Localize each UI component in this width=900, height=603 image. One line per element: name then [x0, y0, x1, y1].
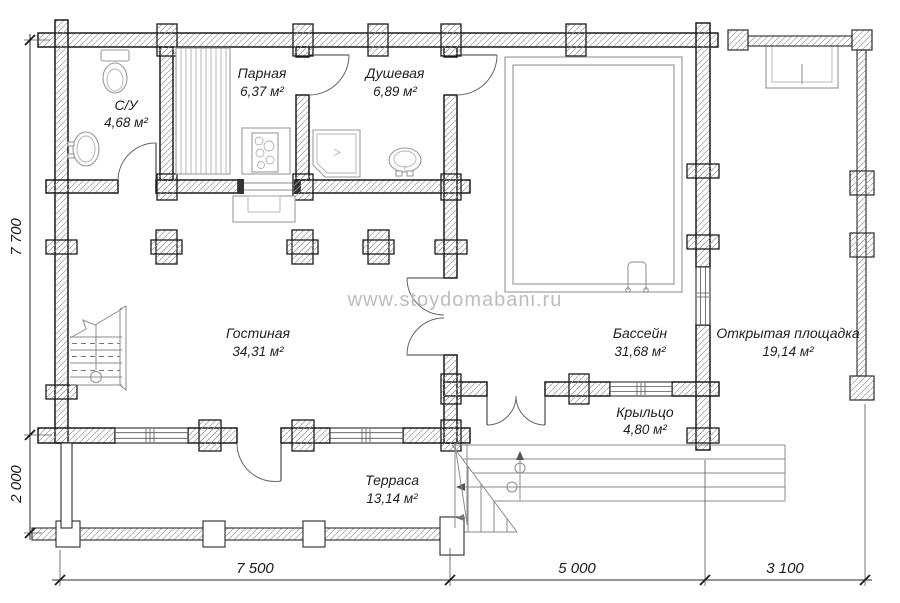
bathroom-door	[118, 143, 156, 180]
room-area: 6,89 м²	[373, 84, 417, 99]
dim-width-right: 3 100	[766, 560, 804, 577]
stove-niche-lines	[244, 183, 294, 190]
room-area: 34,31 м²	[232, 344, 284, 359]
wall-b	[160, 47, 173, 180]
wall-f-3	[672, 382, 719, 396]
log-stub	[46, 240, 77, 254]
log-stub	[569, 374, 589, 404]
log-stub	[687, 164, 719, 178]
dimension-left: 7 700 2 000	[8, 34, 52, 540]
log-stub	[441, 420, 461, 451]
sauna-bench-icon	[176, 48, 230, 174]
room-name: Бассейн	[613, 325, 667, 341]
room-area: 4,68 м²	[104, 115, 148, 130]
room-name: Открытая площадка	[716, 325, 860, 341]
window	[610, 382, 672, 396]
room-label-porch: Крыльцо 4,80 м²	[616, 404, 674, 437]
log-stub	[441, 24, 461, 56]
room-name: Гостиная	[226, 325, 291, 341]
log-stub	[566, 24, 586, 56]
wall-left	[55, 20, 68, 443]
log-stub	[199, 420, 221, 451]
room-label-bathroom: С/У 4,68 м²	[104, 97, 148, 130]
log-stub	[441, 374, 461, 404]
cross-column	[363, 230, 394, 264]
dim-height-main: 7 700	[8, 218, 25, 256]
room-label-sauna: Парная 6,37 м²	[238, 65, 287, 99]
dim-height-terrace: 2 000	[8, 465, 25, 504]
direction-arrow-up	[516, 451, 524, 500]
pool-ladder-icon	[626, 262, 648, 292]
log-stub	[687, 428, 719, 443]
floor-plan-page: С/У 4,68 м² Парная 6,37 м² Душевая 6,89 …	[0, 0, 900, 603]
wall-g-1	[38, 428, 115, 443]
log-stub	[157, 24, 177, 56]
room-area: 31,68 м²	[614, 344, 666, 359]
bathroom-sink-icon	[68, 132, 99, 166]
terrace-beam	[32, 528, 462, 540]
log-stub	[435, 240, 467, 254]
room-label-pool: Бассейн 31,68 м²	[613, 325, 667, 359]
pergola-post	[850, 233, 874, 257]
log-stub	[293, 174, 313, 200]
pergola-beam-top	[748, 36, 852, 46]
direction-arrow-left	[456, 483, 510, 491]
terrace-post	[203, 521, 225, 547]
room-name: Терраса	[365, 472, 419, 488]
log-stub	[293, 24, 313, 56]
pool-basin	[505, 57, 682, 292]
entrance-double-door	[487, 396, 545, 425]
window	[696, 267, 710, 325]
stove-niche-cap	[238, 179, 244, 194]
cross-column	[287, 230, 318, 264]
pergola-post	[850, 376, 874, 400]
floor-plan-drawing: С/У 4,68 м² Парная 6,37 м² Душевая 6,89 …	[0, 0, 900, 603]
room-area: 13,14 м²	[366, 491, 418, 506]
room-name: Душевая	[364, 65, 425, 81]
room-area: 6,37 м²	[240, 84, 284, 99]
pergola-post	[850, 171, 874, 195]
room-label-open-area: Открытая площадка 19,14 м²	[716, 325, 860, 359]
staircase	[70, 306, 126, 390]
dim-width-middle: 5 000	[558, 560, 596, 577]
log-stub	[441, 174, 461, 200]
pergola-post	[852, 30, 872, 50]
room-name: С/У	[115, 97, 140, 113]
shower-sink-icon	[389, 148, 421, 176]
entrance-steps	[452, 445, 785, 532]
shower-door	[457, 55, 497, 95]
room-name: Парная	[238, 65, 287, 81]
window	[330, 428, 403, 443]
dim-width-left: 7 500	[236, 560, 274, 577]
wall-c-lower	[296, 95, 309, 180]
terrace-left-post-column	[61, 443, 72, 528]
sauna-door	[309, 55, 349, 95]
room-label-living: Гостиная 34,31 м²	[226, 325, 291, 359]
sauna-stove-icon	[233, 128, 295, 222]
terrace-door	[237, 443, 281, 481]
toilet-icon	[101, 50, 129, 93]
wall-a-1	[46, 180, 118, 193]
room-area: 19,14 м²	[762, 344, 814, 359]
log-stub	[368, 24, 388, 56]
shower-cabin-icon	[313, 130, 360, 177]
pergola-post	[728, 30, 748, 50]
terrace-post	[440, 517, 464, 555]
watermark: www.stoydomabani.ru	[347, 289, 563, 311]
window	[115, 428, 188, 443]
wall-e-upper	[696, 23, 710, 267]
cross-column	[151, 230, 182, 264]
log-stub	[292, 420, 314, 451]
terrace-side-step	[455, 443, 467, 528]
room-label-terrace: Терраса 13,14 м²	[365, 472, 419, 506]
outdoor-table-icon	[766, 46, 838, 88]
room-label-shower: Душевая 6,89 м²	[364, 65, 425, 99]
log-stub	[687, 235, 719, 249]
terrace-post	[303, 521, 325, 547]
log-stub	[157, 174, 177, 200]
room-area: 4,80 м²	[623, 422, 667, 437]
room-name: Крыльцо	[616, 404, 674, 420]
log-stub	[46, 385, 77, 399]
